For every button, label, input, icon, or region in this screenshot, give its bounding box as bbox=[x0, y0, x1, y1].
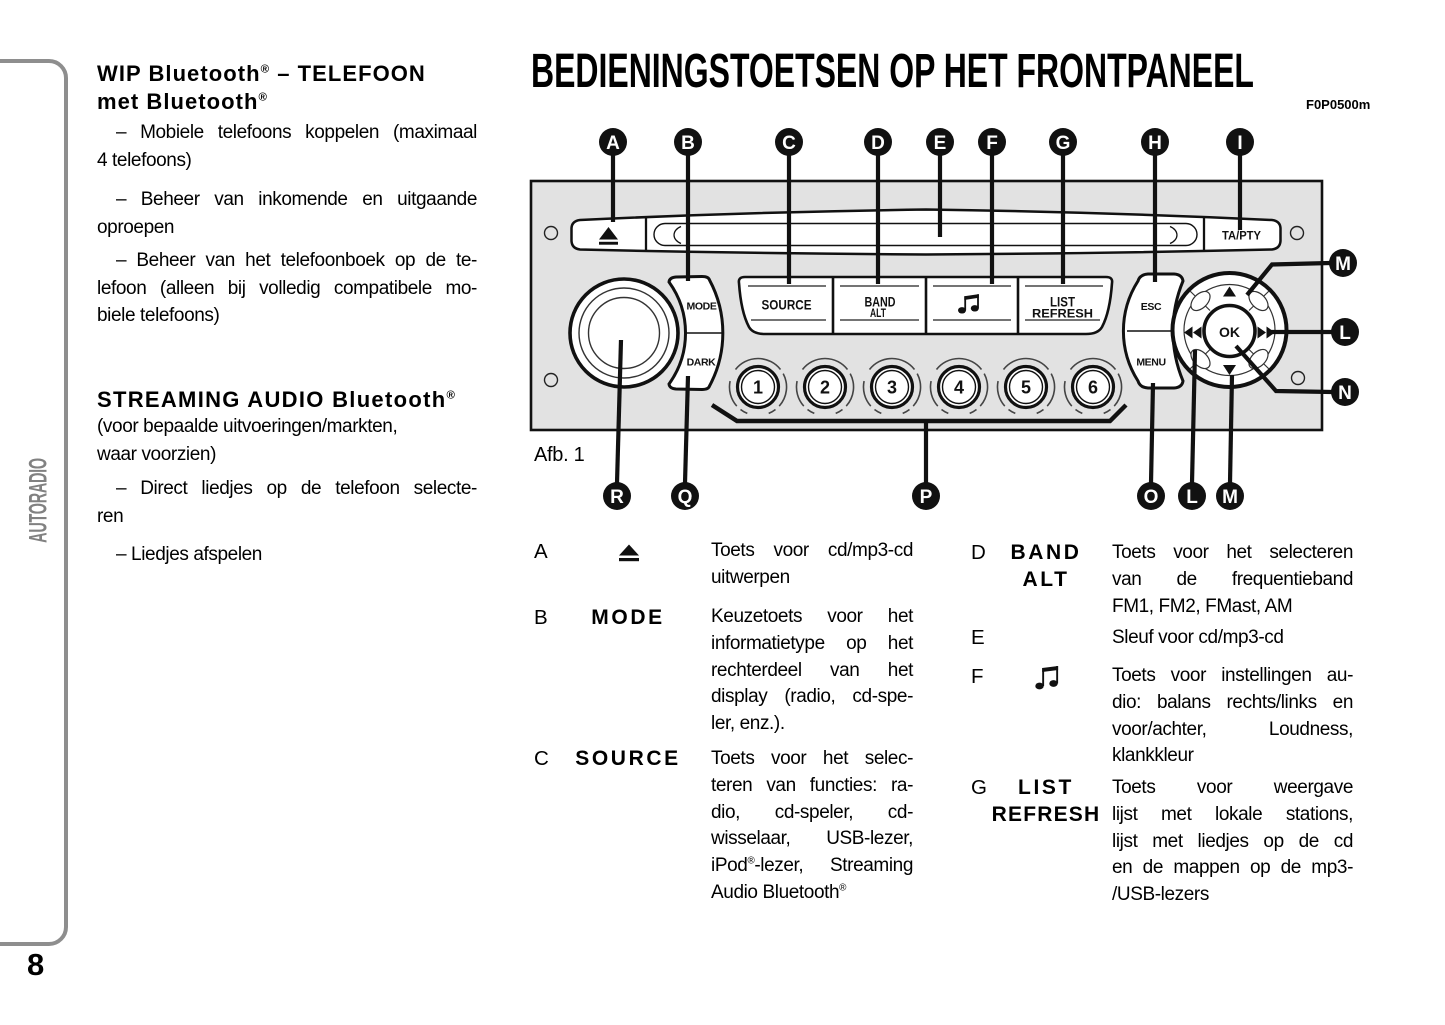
svg-text:4: 4 bbox=[954, 378, 964, 398]
svg-text:B: B bbox=[681, 133, 695, 154]
svg-text:R: R bbox=[610, 487, 624, 508]
svg-text:N: N bbox=[1338, 383, 1352, 404]
svg-text:F: F bbox=[986, 133, 998, 154]
svg-text:2: 2 bbox=[820, 378, 830, 398]
svg-text:MENU: MENU bbox=[1136, 357, 1165, 369]
svg-text:P: P bbox=[920, 487, 933, 508]
svg-text:TA/PTY: TA/PTY bbox=[1222, 231, 1261, 243]
svg-text:G: G bbox=[1056, 133, 1071, 154]
svg-text:Q: Q bbox=[678, 487, 693, 508]
svg-text:C: C bbox=[782, 133, 796, 154]
svg-text:SOURCE: SOURCE bbox=[762, 298, 812, 313]
svg-text:ESC: ESC bbox=[1141, 301, 1162, 313]
svg-text:E: E bbox=[934, 133, 947, 154]
svg-text:OK: OK bbox=[1219, 324, 1240, 340]
svg-text:L: L bbox=[1186, 487, 1198, 508]
svg-text:6: 6 bbox=[1088, 378, 1098, 398]
svg-text:1: 1 bbox=[753, 378, 763, 398]
svg-text:REFRESH: REFRESH bbox=[1032, 307, 1093, 321]
svg-text:5: 5 bbox=[1021, 378, 1031, 398]
svg-text:I: I bbox=[1237, 133, 1242, 154]
svg-text:MODE: MODE bbox=[687, 301, 717, 313]
svg-text:L: L bbox=[1339, 323, 1351, 344]
svg-text:A: A bbox=[606, 133, 620, 154]
svg-text:ALT: ALT bbox=[870, 308, 886, 320]
svg-text:O: O bbox=[1144, 487, 1159, 508]
svg-text:DARK: DARK bbox=[687, 357, 717, 369]
svg-text:M: M bbox=[1222, 487, 1238, 508]
svg-text:3: 3 bbox=[887, 378, 897, 398]
svg-text:H: H bbox=[1148, 133, 1162, 154]
svg-text:D: D bbox=[871, 133, 885, 154]
svg-text:M: M bbox=[1335, 254, 1351, 275]
